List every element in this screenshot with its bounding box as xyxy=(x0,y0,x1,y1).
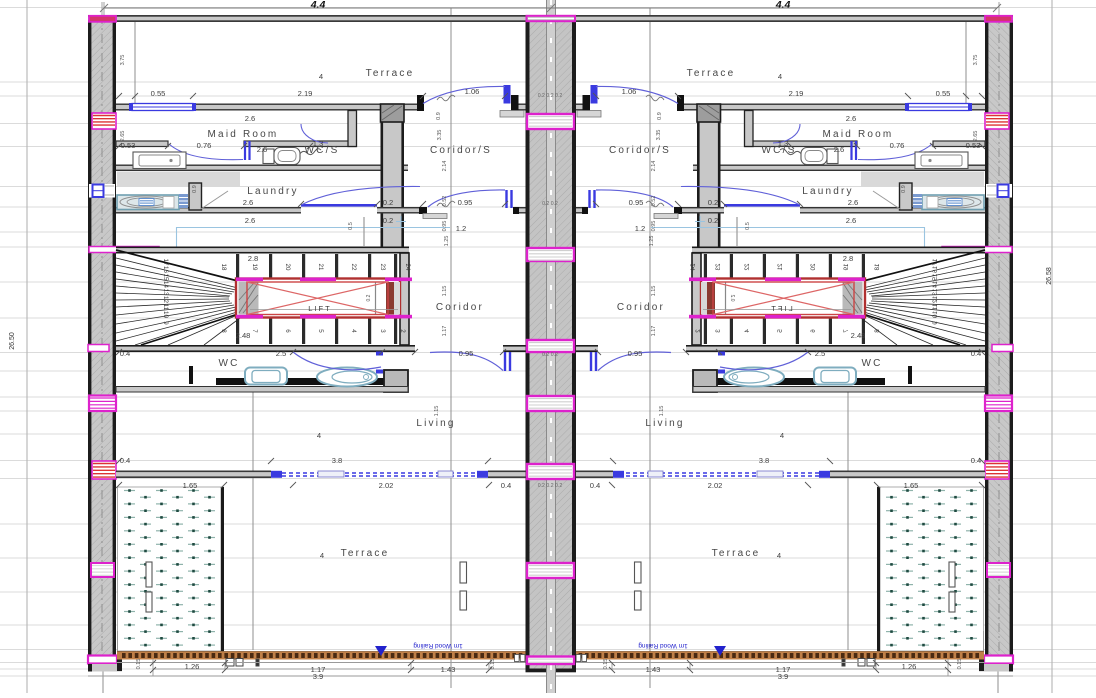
svg-text:0.4: 0.4 xyxy=(971,349,982,358)
svg-text:19: 19 xyxy=(251,264,258,271)
svg-text:0.15: 0.15 xyxy=(136,659,142,670)
svg-text:Maid Room: Maid Room xyxy=(208,129,279,140)
svg-text:0.2: 0.2 xyxy=(383,216,394,225)
svg-text:0.9: 0.9 xyxy=(436,112,442,120)
svg-text:0.95: 0.95 xyxy=(459,349,474,358)
svg-text:Laundry: Laundry xyxy=(802,186,854,197)
svg-text:1.2: 1.2 xyxy=(635,224,646,233)
svg-text:2.8: 2.8 xyxy=(248,254,259,263)
svg-text:4: 4 xyxy=(780,431,784,440)
svg-text:0.15: 0.15 xyxy=(490,659,496,670)
svg-text:1.15: 1.15 xyxy=(442,286,448,297)
svg-text:2.48: 2.48 xyxy=(236,331,251,340)
svg-text:2.6: 2.6 xyxy=(257,145,268,154)
svg-text:0.95: 0.95 xyxy=(442,221,448,232)
svg-text:10: 10 xyxy=(162,311,169,318)
svg-text:Maid Room: Maid Room xyxy=(823,129,894,140)
svg-text:1.17: 1.17 xyxy=(442,326,448,337)
svg-text:2.65: 2.65 xyxy=(973,131,979,142)
svg-text:0.53: 0.53 xyxy=(121,141,136,150)
svg-text:2.19: 2.19 xyxy=(298,89,313,98)
svg-text:0.2 0.2: 0.2 0.2 xyxy=(542,201,558,207)
svg-text:3: 3 xyxy=(379,329,386,333)
svg-text:13: 13 xyxy=(162,289,169,296)
svg-text:1m Wood Railing: 1m Wood Railing xyxy=(413,642,463,649)
svg-text:1.15: 1.15 xyxy=(651,286,657,297)
svg-text:Terrace: Terrace xyxy=(341,548,390,559)
svg-text:Coridor: Coridor xyxy=(617,302,665,313)
svg-text:0.52: 0.52 xyxy=(651,196,657,207)
svg-text:0.76: 0.76 xyxy=(890,141,905,150)
svg-text:4.4: 4.4 xyxy=(310,0,326,11)
svg-text:2.6: 2.6 xyxy=(245,114,256,123)
svg-text:0.4: 0.4 xyxy=(120,456,131,465)
svg-text:3.8: 3.8 xyxy=(759,456,770,465)
svg-text:0.76: 0.76 xyxy=(197,141,212,150)
svg-text:Terrace: Terrace xyxy=(712,548,761,559)
svg-text:1.06: 1.06 xyxy=(465,87,480,96)
svg-text:12: 12 xyxy=(162,296,169,303)
svg-text:0.2 0.2 0.2: 0.2 0.2 0.2 xyxy=(538,483,563,489)
svg-text:1.15: 1.15 xyxy=(659,406,665,417)
svg-text:8: 8 xyxy=(220,329,227,333)
svg-text:0.4: 0.4 xyxy=(501,481,512,490)
svg-text:4: 4 xyxy=(319,72,323,81)
svg-text:4: 4 xyxy=(778,72,782,81)
svg-text:5: 5 xyxy=(317,329,324,333)
svg-text:0.4: 0.4 xyxy=(971,456,982,465)
svg-text:0.2: 0.2 xyxy=(708,216,719,225)
svg-text:1.25: 1.25 xyxy=(444,236,450,247)
svg-text:6: 6 xyxy=(284,329,291,333)
svg-text:0.95: 0.95 xyxy=(628,349,643,358)
svg-text:7: 7 xyxy=(251,329,258,333)
svg-text:1.65: 1.65 xyxy=(904,481,919,490)
svg-text:0.95: 0.95 xyxy=(458,198,473,207)
svg-text:14: 14 xyxy=(162,281,169,288)
svg-text:2.19: 2.19 xyxy=(789,89,804,98)
svg-text:26.50: 26.50 xyxy=(9,332,16,350)
svg-text:0.9: 0.9 xyxy=(192,185,198,193)
svg-text:0.95: 0.95 xyxy=(651,221,657,232)
svg-text:0.5: 0.5 xyxy=(348,222,354,230)
svg-text:0.9: 0.9 xyxy=(901,185,907,193)
svg-text:3.75: 3.75 xyxy=(120,55,126,66)
svg-text:3.75: 3.75 xyxy=(973,55,979,66)
svg-text:15: 15 xyxy=(162,274,169,281)
svg-text:Coridor: Coridor xyxy=(436,302,484,313)
svg-text:17: 17 xyxy=(162,259,169,266)
svg-text:Living: Living xyxy=(645,418,684,429)
svg-text:WC: WC xyxy=(861,358,882,369)
svg-text:WC/S: WC/S xyxy=(305,145,340,156)
svg-text:LIFT: LIFT xyxy=(308,304,331,313)
svg-text:1.15: 1.15 xyxy=(434,406,440,417)
svg-text:2.48: 2.48 xyxy=(851,331,866,340)
svg-text:23: 23 xyxy=(379,264,386,271)
svg-text:4: 4 xyxy=(320,551,324,560)
svg-text:2.02: 2.02 xyxy=(379,481,394,490)
svg-text:20: 20 xyxy=(284,264,291,271)
svg-text:1m Wood Railing: 1m Wood Railing xyxy=(638,642,688,649)
svg-text:1.06: 1.06 xyxy=(622,87,637,96)
svg-text:Living: Living xyxy=(416,418,455,429)
svg-text:WC/S: WC/S xyxy=(762,145,797,156)
svg-text:1.65: 1.65 xyxy=(183,481,198,490)
svg-text:2.6: 2.6 xyxy=(846,216,857,225)
svg-text:2.6: 2.6 xyxy=(846,114,857,123)
svg-text:16: 16 xyxy=(162,266,169,273)
svg-text:0.5: 0.5 xyxy=(745,222,751,230)
svg-text:0.52: 0.52 xyxy=(442,196,448,207)
svg-text:Coridor/S: Coridor/S xyxy=(609,145,671,156)
svg-text:11: 11 xyxy=(162,304,169,311)
svg-text:WC: WC xyxy=(218,358,239,369)
svg-text:0.2: 0.2 xyxy=(708,198,719,207)
svg-text:Terrace: Terrace xyxy=(687,68,736,79)
svg-text:0.2: 0.2 xyxy=(383,198,394,207)
svg-text:2.6: 2.6 xyxy=(245,216,256,225)
svg-text:21: 21 xyxy=(317,264,324,271)
svg-text:Coridor/S: Coridor/S xyxy=(430,145,492,156)
svg-text:3.35: 3.35 xyxy=(656,130,662,141)
svg-text:18: 18 xyxy=(220,264,227,271)
svg-text:2.6: 2.6 xyxy=(243,198,254,207)
svg-text:4: 4 xyxy=(777,551,781,560)
svg-text:0.4: 0.4 xyxy=(590,481,601,490)
svg-text:0.2: 0.2 xyxy=(366,294,372,301)
svg-text:1.43: 1.43 xyxy=(441,665,456,674)
svg-text:2.65: 2.65 xyxy=(120,131,126,142)
svg-text:0.2 0.2: 0.2 0.2 xyxy=(542,352,558,358)
svg-text:26.58: 26.58 xyxy=(1046,267,1053,285)
svg-text:0.15: 0.15 xyxy=(957,659,963,670)
svg-text:2: 2 xyxy=(399,329,406,333)
svg-text:0.4: 0.4 xyxy=(120,349,131,358)
svg-text:0.53: 0.53 xyxy=(966,141,981,150)
svg-text:0.9: 0.9 xyxy=(657,112,663,120)
svg-text:1.26: 1.26 xyxy=(902,662,917,671)
svg-text:2.14: 2.14 xyxy=(651,161,657,172)
svg-text:2.14: 2.14 xyxy=(442,161,448,172)
svg-text:0.2 0.2 0.2: 0.2 0.2 0.2 xyxy=(538,93,563,99)
svg-text:4: 4 xyxy=(317,431,321,440)
svg-text:9: 9 xyxy=(162,321,169,325)
svg-text:4.4: 4.4 xyxy=(775,0,791,11)
svg-text:1.17: 1.17 xyxy=(651,326,657,337)
svg-text:3.35: 3.35 xyxy=(437,130,443,141)
svg-text:2.02: 2.02 xyxy=(708,481,723,490)
svg-text:Terrace: Terrace xyxy=(366,68,415,79)
svg-text:0.55: 0.55 xyxy=(936,89,951,98)
svg-text:4: 4 xyxy=(350,329,357,333)
svg-text:1.25: 1.25 xyxy=(649,236,655,247)
svg-text:1.26: 1.26 xyxy=(185,662,200,671)
svg-text:24: 24 xyxy=(404,264,411,271)
svg-text:1.43: 1.43 xyxy=(646,665,661,674)
svg-text:3.9: 3.9 xyxy=(778,672,789,681)
svg-text:0.95: 0.95 xyxy=(629,198,644,207)
svg-text:22: 22 xyxy=(350,264,357,271)
svg-text:3.9: 3.9 xyxy=(313,672,324,681)
svg-text:0.55: 0.55 xyxy=(151,89,166,98)
svg-text:2.8: 2.8 xyxy=(843,254,854,263)
svg-text:Laundry: Laundry xyxy=(247,186,299,197)
svg-text:2.5: 2.5 xyxy=(276,349,287,358)
svg-text:3.8: 3.8 xyxy=(332,456,343,465)
svg-text:2.6: 2.6 xyxy=(834,145,845,154)
svg-text:0.15: 0.15 xyxy=(603,659,609,670)
svg-text:2.6: 2.6 xyxy=(848,198,859,207)
svg-text:2.5: 2.5 xyxy=(815,349,826,358)
svg-text:1.2: 1.2 xyxy=(456,224,467,233)
